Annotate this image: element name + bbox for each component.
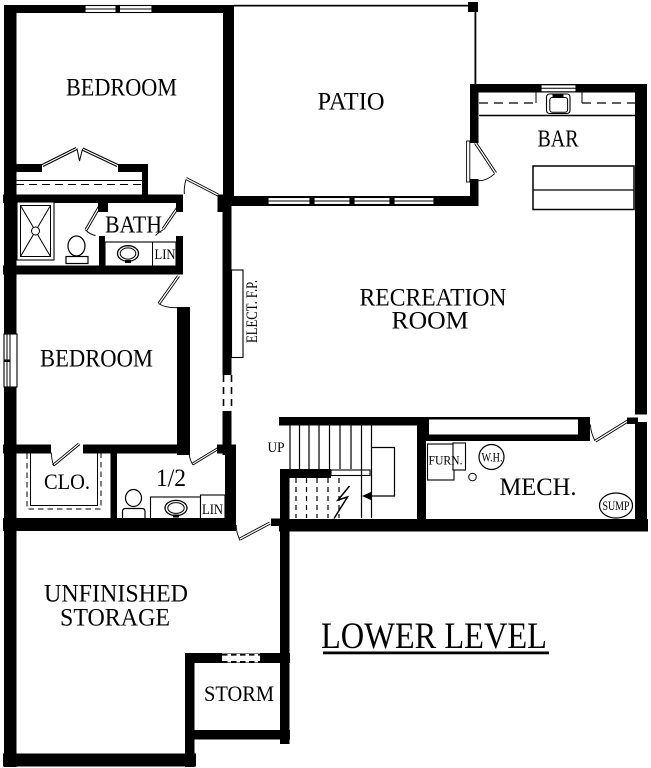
svg-text:BAR: BAR	[538, 126, 580, 153]
svg-text:BATH: BATH	[105, 212, 162, 239]
svg-text:STORM: STORM	[204, 681, 274, 706]
svg-text:UP: UP	[268, 440, 285, 456]
svg-text:SUMP: SUMP	[603, 499, 630, 513]
svg-text:FURN.: FURN.	[429, 454, 463, 468]
svg-text:CLO.: CLO.	[44, 469, 90, 494]
svg-text:LIN: LIN	[155, 247, 176, 263]
svg-text:STORAGE: STORAGE	[60, 603, 170, 632]
svg-text:ROOM: ROOM	[392, 306, 469, 335]
svg-text:ELECT. F.P.: ELECT. F.P.	[244, 280, 261, 343]
svg-text:LOWER LEVEL: LOWER LEVEL	[321, 615, 547, 656]
svg-text:LIN: LIN	[202, 502, 223, 518]
svg-text:MECH.: MECH.	[500, 472, 577, 501]
svg-text:W.H.: W.H.	[482, 451, 503, 465]
svg-text:BEDROOM: BEDROOM	[66, 75, 177, 102]
svg-text:1/2: 1/2	[156, 465, 186, 492]
svg-text:PATIO: PATIO	[318, 89, 385, 116]
svg-text:BEDROOM: BEDROOM	[40, 346, 153, 373]
